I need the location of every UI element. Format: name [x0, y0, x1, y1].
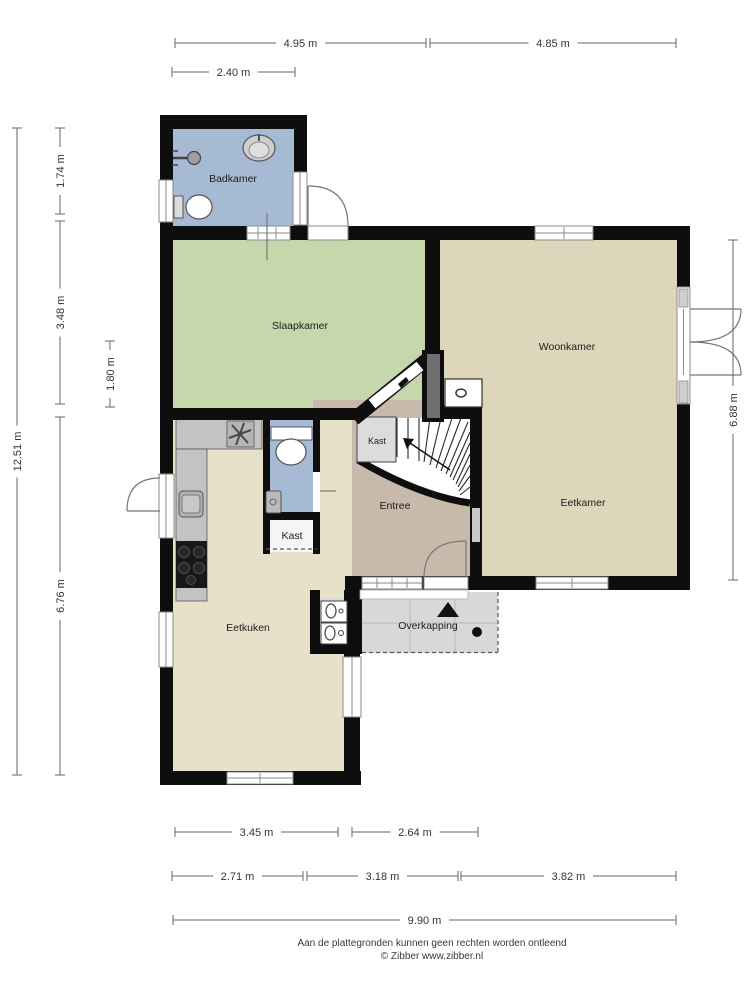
- window-kitchen-right: [343, 657, 361, 717]
- svg-text:9.90 m: 9.90 m: [408, 915, 442, 927]
- kitchen-sink-icon: [179, 491, 203, 517]
- dim-top-3: 2.40 m: [172, 66, 295, 80]
- drain-dot-icon: [472, 627, 482, 637]
- svg-text:6.88 m: 6.88 m: [728, 393, 740, 427]
- interior-window-inset: [472, 508, 480, 542]
- svg-text:3.82 m: 3.82 m: [552, 871, 586, 883]
- hob-icon: [176, 541, 207, 588]
- dim-left-4: 6.76 m: [54, 417, 68, 775]
- label-entree: Entree: [380, 500, 411, 512]
- svg-text:1.74 m: 1.74 m: [55, 154, 67, 188]
- label-eetkuken: Eetkuken: [226, 622, 270, 634]
- dim-top-1: 4.95 m: [175, 37, 426, 51]
- toilet-badkamer-icon: [174, 195, 212, 219]
- dim-bottom-4: 3.18 m: [307, 870, 458, 884]
- extractor-fan-icon: [227, 421, 254, 447]
- label-badkamer: Badkamer: [209, 173, 257, 185]
- window-kitchen-bottom: [227, 772, 293, 784]
- dim-left-5: 1.80 m: [104, 341, 118, 407]
- fireplace-icon: [445, 379, 482, 407]
- label-kast-hal: Kast: [281, 530, 302, 542]
- svg-text:4.95 m: 4.95 m: [284, 38, 318, 50]
- svg-text:2.64 m: 2.64 m: [398, 827, 432, 839]
- svg-text:3.48 m: 3.48 m: [55, 296, 67, 330]
- dim-bottom-6: 9.90 m: [173, 914, 676, 928]
- washer-icon: [321, 601, 347, 622]
- svg-text:2.71 m: 2.71 m: [221, 871, 255, 883]
- laundry-appliances: [321, 601, 347, 644]
- label-slaapkamer: Slaapkamer: [272, 320, 329, 332]
- svg-text:12.51 m: 12.51 m: [12, 432, 24, 472]
- label-kast-understairs: Kast: [368, 436, 387, 446]
- window-woonkamer-top: [535, 226, 593, 240]
- chimney: [427, 354, 440, 418]
- dim-bottom-5: 3.82 m: [461, 870, 676, 884]
- dim-bottom-1: 3.45 m: [175, 826, 338, 840]
- window-eetkamer-bottom: [536, 577, 608, 589]
- label-overkapping: Overkapping: [398, 620, 458, 632]
- footer: Aan de plattegronden kunnen geen rechten…: [297, 938, 566, 962]
- dim-top-2: 4.85 m: [430, 37, 676, 51]
- back-door: [308, 186, 348, 240]
- svg-text:4.85 m: 4.85 m: [536, 38, 570, 50]
- floor-plan-drawing: Badkamer Slaapkamer Woonkamer Eetkamer E…: [0, 0, 750, 1000]
- footer-copyright: © Zibber www.zibber.nl: [381, 951, 483, 962]
- svg-text:6.76 m: 6.76 m: [55, 579, 67, 613]
- window-badkamer-left: [159, 180, 173, 222]
- footer-disclaimer: Aan de plattegronden kunnen geen rechten…: [297, 938, 566, 949]
- dim-left-3: 3.48 m: [54, 221, 68, 404]
- window-kitchen-left: [159, 612, 173, 667]
- dryer-icon: [321, 623, 347, 644]
- bath-sink-icon: [243, 134, 275, 161]
- svg-text:3.45 m: 3.45 m: [240, 827, 274, 839]
- window-badkamer-right: [293, 172, 307, 225]
- svg-text:2.40 m: 2.40 m: [217, 67, 251, 79]
- dim-bottom-2: 2.64 m: [352, 826, 478, 840]
- svg-text:3.18 m: 3.18 m: [366, 871, 400, 883]
- wc-sink-icon: [266, 491, 281, 513]
- label-woonkamer: Woonkamer: [539, 341, 596, 353]
- dim-left-2: 1.74 m: [54, 128, 68, 214]
- dim-right-1: 6.88 m: [727, 240, 741, 580]
- floor-plan-page: Badkamer Slaapkamer Woonkamer Eetkamer E…: [0, 0, 750, 1000]
- label-eetkamer: Eetkamer: [561, 497, 606, 509]
- dim-bottom-3: 2.71 m: [172, 870, 303, 884]
- dim-left-1: 12.51 m: [11, 128, 25, 775]
- svg-text:1.80 m: 1.80 m: [105, 357, 117, 391]
- side-door-kitchen: [127, 474, 174, 538]
